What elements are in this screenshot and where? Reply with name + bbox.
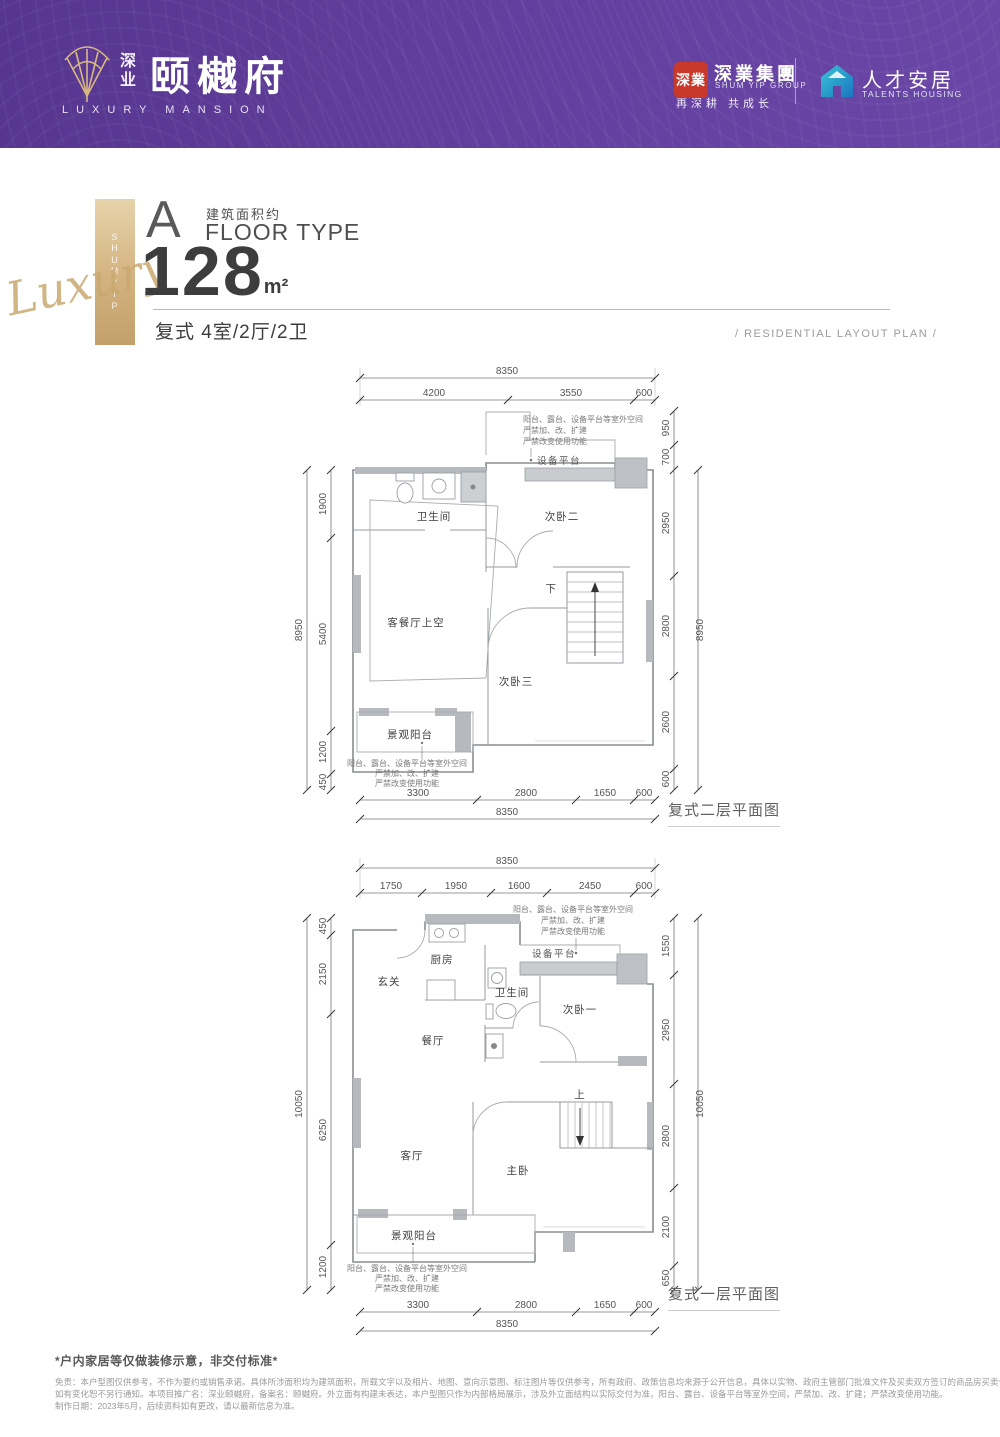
svg-text:6250: 6250 bbox=[318, 1118, 329, 1141]
svg-text:2100: 2100 bbox=[661, 1215, 672, 1238]
svg-text:10050: 10050 bbox=[695, 1090, 706, 1118]
svg-text:2150: 2150 bbox=[318, 962, 329, 985]
upper-dim-lines bbox=[303, 368, 702, 823]
shumyip-seal: 深業 bbox=[674, 62, 708, 98]
svg-text:8350: 8350 bbox=[496, 856, 519, 867]
room-label-bed2: 次卧二 bbox=[545, 510, 580, 523]
svg-text:5400: 5400 bbox=[318, 622, 329, 645]
ginkgo-fan-icon bbox=[58, 42, 116, 104]
svg-text:1900: 1900 bbox=[318, 492, 329, 515]
svg-text:700: 700 bbox=[661, 448, 672, 465]
svg-text:2600: 2600 bbox=[661, 710, 672, 733]
room-label-living-void: 客餐厅上空 bbox=[387, 616, 445, 629]
footer-note: *户内家居等仅做装修示意，非交付标准* bbox=[55, 1352, 278, 1369]
svg-text:600: 600 bbox=[636, 788, 653, 799]
area-unit: m² bbox=[264, 276, 288, 306]
svg-text:严禁加、改、扩建: 严禁加、改、扩建 bbox=[523, 425, 587, 435]
residential-layout-tag: / RESIDENTIAL LAYOUT PLAN / bbox=[735, 328, 937, 340]
svg-text:950: 950 bbox=[661, 419, 672, 436]
room-label-kitchen: 厨房 bbox=[431, 953, 454, 966]
upper-plan-walls bbox=[353, 412, 653, 772]
svg-text:8350: 8350 bbox=[496, 1319, 519, 1330]
svg-text:600: 600 bbox=[636, 388, 653, 399]
svg-text:1650: 1650 bbox=[594, 1300, 617, 1311]
upper-floor-plan: 8350 4200 3550 600 8950 1900 5400 1200 4… bbox=[285, 360, 715, 830]
svg-text:10050: 10050 bbox=[294, 1090, 305, 1118]
brand-cn-stack: 深 业 bbox=[120, 52, 138, 90]
svg-text:450: 450 bbox=[318, 773, 329, 790]
svg-text:阳台、露台、设备平台等室外空间: 阳台、露台、设备平台等室外空间 bbox=[347, 1263, 467, 1273]
upper-plan-caption: 复式二层平面图 bbox=[668, 799, 780, 827]
svg-text:8950: 8950 bbox=[695, 618, 706, 641]
stairs-down-label: 下 bbox=[546, 583, 558, 595]
svg-text:1600: 1600 bbox=[508, 881, 531, 892]
svg-text:2800: 2800 bbox=[515, 788, 538, 799]
group-name-en: SHUM YIP GROUP bbox=[715, 81, 807, 90]
room-label-bed1: 次卧一 bbox=[563, 1003, 598, 1016]
room-label-dining: 餐厅 bbox=[422, 1034, 445, 1047]
room-label-bed3: 次卧三 bbox=[499, 675, 534, 688]
svg-text:2950: 2950 bbox=[661, 1018, 672, 1041]
brand-cn-char2: 业 bbox=[120, 71, 138, 90]
svg-text:2800: 2800 bbox=[661, 1124, 672, 1147]
svg-text:严禁改变使用功能: 严禁改变使用功能 bbox=[523, 436, 587, 446]
bathroom-fixtures bbox=[396, 472, 486, 503]
disclaimer-line-2: 如有变化恕不另行通知。本项目推广名：深业颐樾府，备案名：颐樾府。外立面有构建未表… bbox=[55, 1388, 948, 1400]
intro-rule bbox=[153, 309, 890, 310]
svg-text:1200: 1200 bbox=[318, 1255, 329, 1278]
svg-text:1200: 1200 bbox=[318, 740, 329, 763]
room-label-bath: 卫生间 bbox=[495, 986, 530, 999]
brochure-page: 深 业 颐樾府 LUXURY MANSION 深業 深業集團 SHUM YIP … bbox=[0, 0, 1000, 1437]
svg-text:600: 600 bbox=[636, 1300, 653, 1311]
svg-text:3550: 3550 bbox=[560, 388, 583, 399]
area-value: 128 bbox=[141, 236, 264, 306]
room-label-balcony: 景观阳台 bbox=[391, 1229, 437, 1242]
equipment-platform-label: 设备平台 bbox=[532, 948, 576, 960]
svg-text:2950: 2950 bbox=[661, 511, 672, 534]
svg-text:1550: 1550 bbox=[661, 934, 672, 957]
svg-text:严禁加、改、扩建: 严禁加、改、扩建 bbox=[541, 915, 605, 925]
svg-text:450: 450 bbox=[318, 917, 329, 934]
svg-text:严禁改变使用功能: 严禁改变使用功能 bbox=[375, 778, 439, 788]
room-label-bath: 卫生间 bbox=[417, 510, 452, 523]
lower-plan-caption: 复式一层平面图 bbox=[668, 1283, 780, 1311]
svg-text:2800: 2800 bbox=[661, 614, 672, 637]
brand-cn-char1: 深 bbox=[120, 52, 138, 71]
svg-text:严禁加、改、扩建: 严禁加、改、扩建 bbox=[375, 1273, 439, 1283]
room-label-master: 主卧 bbox=[507, 1164, 530, 1177]
layout-text: 复式 4室/2厅/2卫 bbox=[155, 317, 309, 344]
room-label-living: 客厅 bbox=[401, 1149, 424, 1162]
svg-text:阳台、露台、设备平台等室外空间: 阳台、露台、设备平台等室外空间 bbox=[347, 758, 467, 768]
talents-name-en: TALENTS HOUSING bbox=[862, 89, 963, 99]
lower-floor-plan: 8350 1750 1950 1600 2450 600 10050 450 2… bbox=[285, 850, 715, 1342]
room-label-balcony: 景观阳台 bbox=[387, 728, 433, 741]
svg-text:阳台、露台、设备平台等室外空间: 阳台、露台、设备平台等室外空间 bbox=[523, 414, 643, 424]
svg-text:1950: 1950 bbox=[445, 881, 468, 892]
header-banner: 深 业 颐樾府 LUXURY MANSION 深業 深業集團 SHUM YIP … bbox=[0, 0, 1000, 148]
svg-text:8950: 8950 bbox=[294, 618, 305, 641]
equipment-platform-label: 设备平台 bbox=[537, 455, 581, 467]
disclaimer-line-1: 免责：本户型图仅供参考，不作为要约或销售承诺。具体所涉面积均为建筑面积，所载文字… bbox=[55, 1376, 1000, 1388]
room-label-foyer: 玄关 bbox=[378, 975, 401, 988]
disclaimer-line-3: 制作日期：2023年5月，后续资料如有更改，请以最新信息为准。 bbox=[55, 1400, 300, 1412]
svg-text:8350: 8350 bbox=[496, 807, 519, 818]
svg-text:4200: 4200 bbox=[423, 388, 446, 399]
svg-text:3300: 3300 bbox=[407, 788, 430, 799]
svg-text:1750: 1750 bbox=[380, 881, 403, 892]
svg-text:严禁改变使用功能: 严禁改变使用功能 bbox=[541, 926, 605, 936]
svg-text:严禁改变使用功能: 严禁改变使用功能 bbox=[375, 1283, 439, 1293]
svg-text:600: 600 bbox=[661, 770, 672, 787]
lower-plan-walls bbox=[353, 914, 653, 1262]
stairs-up-label: 上 bbox=[574, 1089, 586, 1101]
svg-text:严禁加、改、扩建: 严禁加、改、扩建 bbox=[375, 768, 439, 778]
talents-house-icon bbox=[818, 62, 856, 100]
svg-text:600: 600 bbox=[636, 881, 653, 892]
svg-text:2450: 2450 bbox=[579, 881, 602, 892]
area-figure: 128 m² bbox=[141, 236, 288, 306]
group-slogan: 再深耕 共成长 bbox=[676, 95, 773, 111]
svg-text:2800: 2800 bbox=[515, 1300, 538, 1311]
header-divider bbox=[795, 58, 796, 104]
brand-name: 颐樾府 bbox=[150, 44, 291, 102]
svg-text:1650: 1650 bbox=[594, 788, 617, 799]
brand-name-en: LUXURY MANSION bbox=[62, 104, 273, 116]
svg-text:8350: 8350 bbox=[496, 366, 519, 377]
svg-text:阳台、露台、设备平台等室外空间: 阳台、露台、设备平台等室外空间 bbox=[513, 904, 633, 914]
svg-text:3300: 3300 bbox=[407, 1300, 430, 1311]
